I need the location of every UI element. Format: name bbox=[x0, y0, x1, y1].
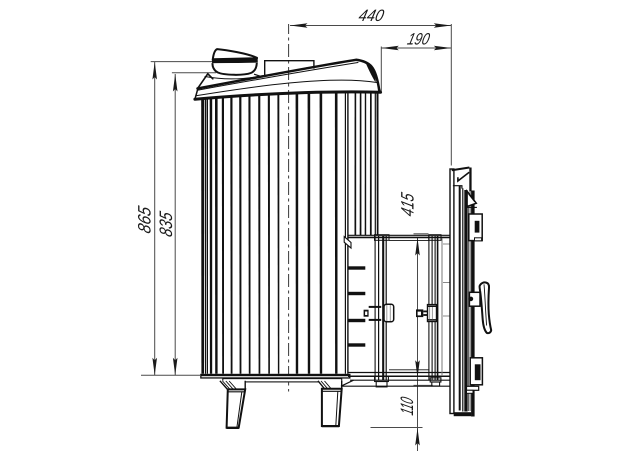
svg-text:835: 835 bbox=[155, 209, 176, 239]
svg-text:415: 415 bbox=[397, 190, 418, 218]
svg-text:190: 190 bbox=[406, 30, 433, 49]
svg-text:110: 110 bbox=[396, 395, 417, 417]
svg-text:440: 440 bbox=[357, 6, 387, 25]
svg-text:865: 865 bbox=[134, 203, 155, 235]
